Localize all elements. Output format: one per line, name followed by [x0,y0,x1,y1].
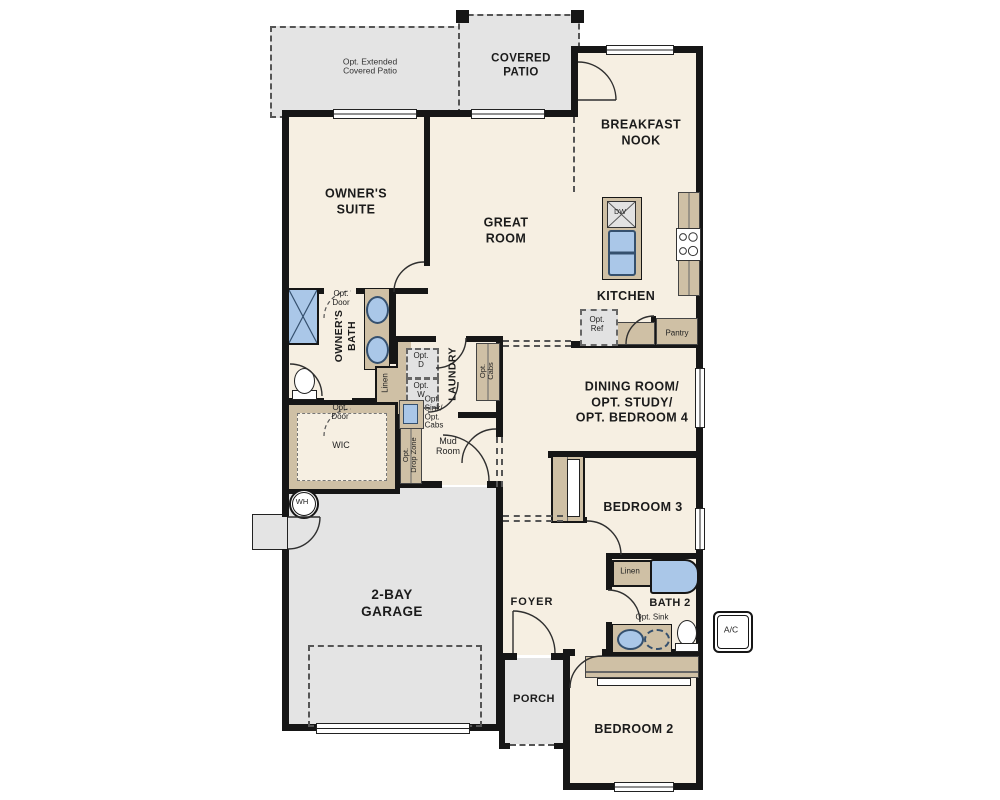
bedroom2-window [614,782,674,792]
opt-dryer-label: Opt. D [413,352,428,370]
opt-sink-basin [403,404,418,424]
wall-west-lower [282,549,289,731]
mud-room-label: Mud Room [436,437,460,457]
kitchen-label: KITCHEN [597,289,655,305]
owners-toilet-bowl [294,368,315,394]
breakfast-nook-floor [575,50,696,115]
shower [287,288,319,345]
wall-laundry-south-right [458,412,503,418]
opt-extended-patio-label: Opt. Extended Covered Patio [343,58,397,77]
patio-post-right [571,10,584,23]
wall-laundry-north-right [466,336,503,342]
dining-room-label: DINING ROOM/ OPT. STUDY/ OPT. BEDROOM 4 [576,380,689,427]
hall-foyer-opening [503,515,563,522]
owners-suite-label: OWNER'S SUITE [325,186,387,217]
dishwasher-label: DW [614,209,626,217]
bedroom2-label: BEDROOM 2 [594,722,673,738]
wall-bedroom2-west [563,653,570,790]
kitchen-boundary-dashed [573,117,577,192]
bedroom2-closet [585,656,699,678]
covered-patio-label: COVERED PATIO [491,52,551,81]
owners-suite-window [333,109,417,119]
owners-bath-label: OWNER'S BATH [333,310,359,363]
bath2-opt-sink [644,629,670,650]
porch-edge-dashed [510,744,554,750]
bedroom3-closet-door [567,459,580,517]
garage-label: 2-BAY GARAGE [361,587,423,621]
opt-door-lower-label: Opt. Door [331,404,348,422]
wall-porch-stub-right [554,743,563,749]
opt-drop-zone-label: Opt. Drop Zone [402,437,419,472]
dining-window [695,368,705,428]
wall-suite-greatroom [424,110,430,266]
opt-ref-label: Opt. Ref [589,316,604,334]
dining-hall-opening [496,437,503,487]
wall-breakfast-west [571,46,578,117]
owners-sink-1 [366,296,389,324]
opt-sink-cabs-label: Opt. Sink/ Opt. Cabs [425,395,444,430]
bathtub [650,559,699,594]
porch-label: PORCH [513,693,555,707]
bath2-toilet-tank [675,643,699,652]
patio-post-left [456,10,469,23]
bedroom2-closet-door [597,678,691,686]
island-sink [608,230,636,276]
bedroom3-label: BEDROOM 3 [603,500,682,516]
wall-hall-garage-east [496,487,503,730]
laundry-label: LAUNDRY [446,347,459,401]
breakfast-nook-label: BREAKFAST NOOK [601,117,681,148]
owners-linen-label: Linen [382,373,391,393]
breakfast-window [606,45,674,55]
garage-parking-outline [308,645,482,727]
wall-bedroom2-north-left [563,649,575,656]
foyer-label: FOYER [511,596,554,610]
bath2-label: BATH 2 [649,597,690,611]
wall-porch-stub-left [499,743,510,749]
kitchen-counter-south [615,322,655,345]
hall-linen-label: Linen [620,568,640,577]
greatroom-sliding-door [471,109,545,119]
garage-door [316,723,470,734]
garage-side-landing [252,514,288,550]
ac-unit-label: A/C [724,625,738,634]
dining-greatroom-opening [503,340,571,347]
great-room-label: GREAT ROOM [484,215,529,246]
floor-plan: Opt. Extended Covered Patio COVERED PATI… [0,0,1000,800]
bedroom3-window [695,508,705,550]
bath2-sink [617,629,644,650]
owners-sink-2 [366,336,389,364]
wic-label: WIC [332,441,350,451]
pantry-label: Pantry [665,330,688,339]
water-heater-label: WH [296,498,309,506]
opt-door-upper-label: Opt. Door [332,290,349,308]
opt-sink-label: Opt. Sink [636,614,669,623]
range [676,228,701,261]
opt-cabs-label: Opt. Cabs [479,362,496,380]
